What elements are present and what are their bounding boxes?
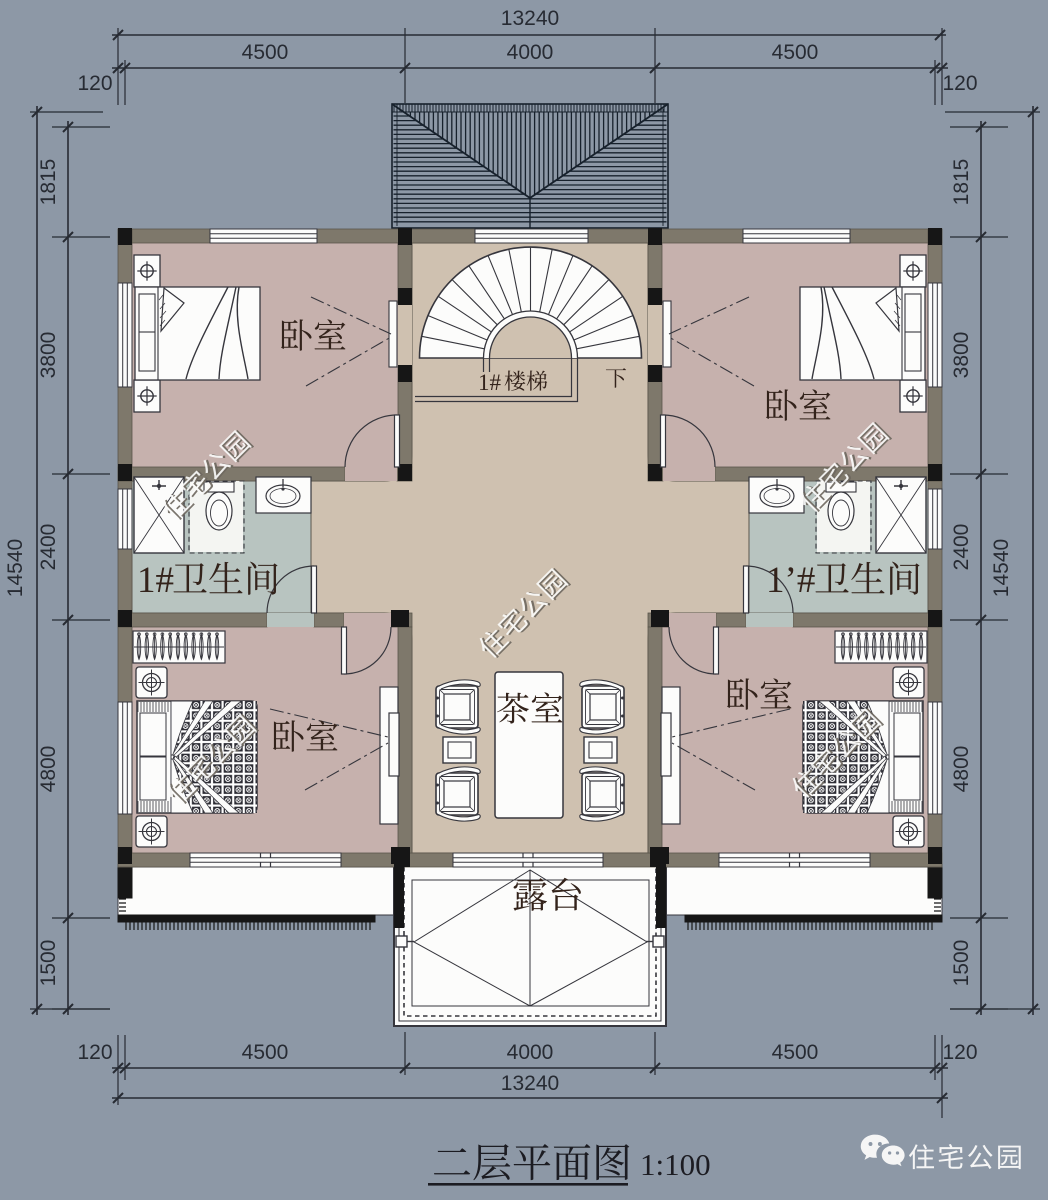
svg-text:1500: 1500 (950, 940, 973, 987)
svg-text:13240: 13240 (501, 7, 559, 30)
svg-text:4500: 4500 (772, 1041, 819, 1064)
svg-text:13240: 13240 (501, 1072, 559, 1095)
svg-text:120: 120 (77, 72, 112, 95)
svg-text:120: 120 (942, 1041, 977, 1064)
svg-text:2400: 2400 (950, 524, 973, 571)
svg-text:1#: 1# (478, 370, 502, 395)
svg-text:1:100: 1:100 (640, 1147, 711, 1182)
svg-text:1#: 1# (137, 560, 174, 601)
svg-text:1815: 1815 (37, 159, 60, 206)
svg-text:4800: 4800 (37, 746, 60, 793)
svg-text:1’#: 1’# (766, 560, 815, 601)
svg-text:14540: 14540 (4, 539, 27, 597)
svg-text:4000: 4000 (507, 1041, 554, 1064)
svg-text:1815: 1815 (950, 159, 973, 206)
svg-text:4500: 4500 (242, 1041, 289, 1064)
svg-text:4000: 4000 (507, 41, 554, 64)
svg-text:4800: 4800 (950, 746, 973, 793)
svg-text:3800: 3800 (950, 332, 973, 379)
svg-text:4500: 4500 (242, 41, 289, 64)
svg-text:3800: 3800 (37, 332, 60, 379)
svg-text:14540: 14540 (990, 539, 1013, 597)
svg-text:120: 120 (77, 1041, 112, 1064)
svg-text:120: 120 (942, 72, 977, 95)
svg-text:2400: 2400 (37, 524, 60, 571)
svg-text:4500: 4500 (772, 41, 819, 64)
svg-text:1500: 1500 (37, 940, 60, 987)
